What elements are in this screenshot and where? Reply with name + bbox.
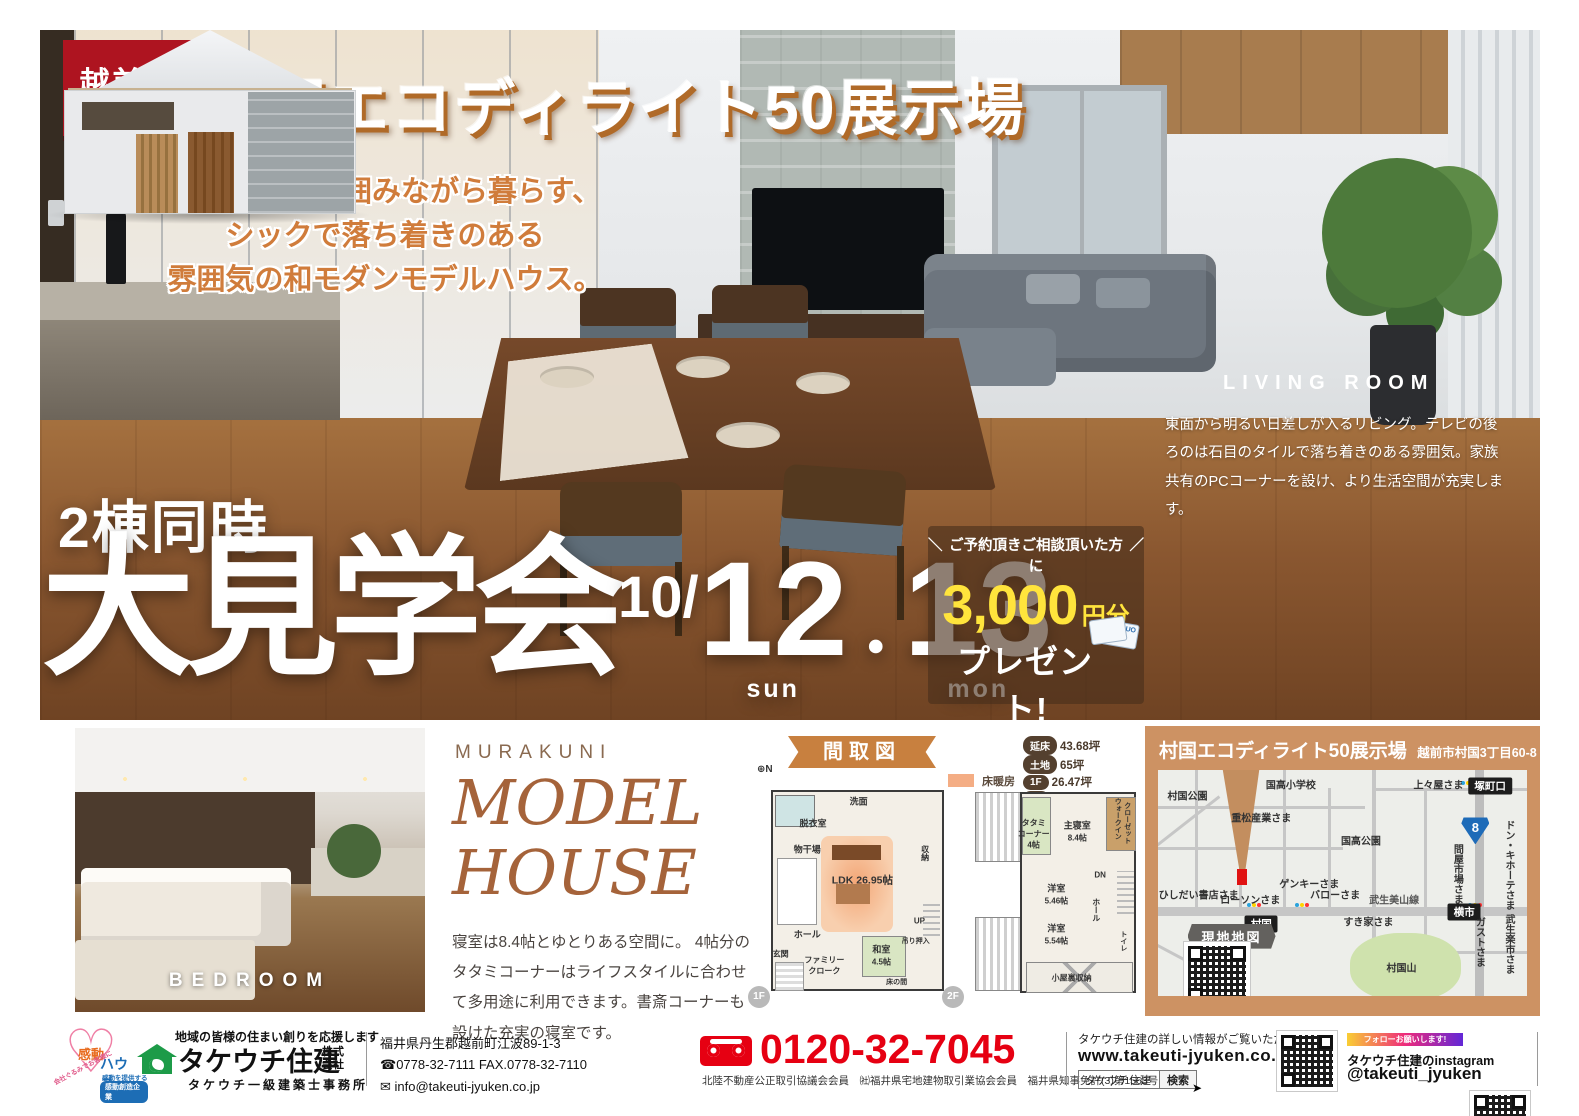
courtyard-area [777,858,817,925]
site-marker [1237,869,1247,885]
map-label: 武生楽市さま [1501,914,1516,974]
instagram-qr-code[interactable] [1470,1091,1530,1116]
event-month: 10/ [618,564,699,631]
map-canvas: 8 国高小学校村国公園上々屋さま塚町口重松産業さま国高公園ドン・キホーテさま問屋… [1158,770,1527,996]
map-label: 武生美山線 [1369,891,1419,906]
plan2-badge: 2F [942,986,964,1008]
stat-pill: 延床43.68坪 [1023,736,1104,755]
map-label: 国高公園 [1341,833,1381,848]
room-label: DN [1094,871,1106,880]
floor-plan-1f: 洗面脱衣室物干場LDK 26.95帖収納UPホール玄関ファミリークローク和室4.… [756,788,946,1006]
event-title: 大見学会 [42,530,618,690]
coupon-amount: 3,000 [942,573,1077,636]
room-label: 小屋裏収納 [1052,972,1092,983]
map-label: バローさま [1310,887,1360,902]
slash-right: ／ [1130,534,1145,576]
map-label: 国高小学校 [1266,776,1316,791]
stairs-1f [923,901,940,936]
entrance-tile [775,962,804,990]
search-box[interactable]: タケウチ住建 検索➤ [1078,1070,1197,1089]
event-day1: 12 [699,548,848,671]
footer-divider [1066,1032,1067,1086]
sofa-pillows [1026,274,1080,304]
instagram-handle[interactable]: @takeuti_jyuken [1347,1064,1482,1084]
coupon-condition: ご予約頂きご相談頂いた方に [949,534,1124,576]
room-label: クローク [808,966,840,977]
event-dow1: sun [746,675,799,704]
contact-block: 福井県丹生郡越前町江波89-1-3 ☎0778-32-7111 FAX.0778… [380,1033,587,1097]
balcony-bottom [975,917,1023,991]
flyer: 越前市 ECHIZEN 村国エコディライト50展示場 憧れの中庭を囲みながら暮ら… [0,0,1579,1116]
downlights [115,774,375,784]
room-label: 洗面 [850,795,868,808]
map-address: 越前市村国3丁目60-8 [1417,746,1536,760]
heating-swatch [948,774,974,787]
plate [540,366,594,388]
map-label: 村国公園 [1168,787,1208,802]
coupon-panel: ＼ ご予約頂きご相談頂いた方に ／ 3,000 円分 プレゼント! QUO ご予… [928,526,1144,704]
company-suffix: 株式 会社 [322,1046,344,1072]
compass-north: ⊕N [757,764,773,775]
room-label: 洋室 [1047,882,1065,895]
phone-number[interactable]: 0120-32-7045 [760,1026,1015,1073]
map-label: 村国山 [1387,959,1417,974]
room-label: 5.54帖 [1045,935,1069,946]
coupon-present: プレゼント! [936,635,1114,720]
quo-card [1088,616,1127,646]
footer-divider [366,1032,367,1086]
company-name: タケウチ住建 [178,1040,340,1079]
room-label: 洋室 [1047,921,1065,934]
map-label: 塚町口 [1468,777,1512,794]
plan1-badge: 1F [748,986,770,1008]
coupon-condition-row: ＼ ご予約頂きご相談頂いた方に ／ [928,534,1144,576]
balcony-top [975,792,1023,862]
plate [796,372,850,394]
access-map-panel: 村国エコディライト50展示場 越前市村国3丁目60-8 8 [1145,726,1540,1016]
room-label: 物干場 [794,843,821,856]
map-qr-code[interactable] [1184,942,1250,996]
house-wood-slats [136,134,178,213]
heating-label: 床暖房 [982,773,1015,789]
bedroom-photo: BEDROOM [75,728,425,1012]
room-label: UP [914,916,925,925]
route-8-shield: 8 [1461,817,1489,844]
plate [676,356,730,378]
room-label: ファミリー [804,955,844,966]
contact-email[interactable]: ✉ info@takeuti-jyuken.co.jp [380,1076,587,1097]
instagram-banner: フォローお願いします! [1347,1033,1463,1046]
bedroom-plant [327,824,381,878]
search-button[interactable]: 検索➤ [1159,1071,1196,1088]
room-label: ホール [794,928,821,941]
house-window-strip [82,102,174,130]
company-office: タケウチ一級建築士事務所 [188,1076,368,1093]
freedial-icon [700,1036,752,1066]
room-label: LDK 26.95帖 [832,872,893,887]
plate [716,422,780,448]
room-label: 主寝室 [1064,819,1091,832]
room-label: 8.4帖 [1068,833,1087,844]
bedroom-caption: BEDROOM [75,970,425,992]
room-label: 吊り押入 [902,936,930,946]
map-label: ローソンさま [1220,891,1280,906]
cursor-icon: ➤ [1192,1081,1202,1095]
room-label: ウォークイン [1112,798,1122,840]
plant-foliage [1322,158,1472,308]
map-label: 問屋市場さま [1449,844,1464,904]
room-label: 床の間 [886,977,907,987]
model-house-description: 寝室は8.4帖とゆとりある空間に。 4帖分のタタミコーナーはライフスタイルに合わ… [452,928,752,1049]
tagline-line3: 雰囲気の和モダンモデルハウス。 [115,258,655,302]
room-label: 4.5帖 [872,957,891,968]
dining-chair [712,285,808,341]
floor-plan-ribbon: 間取図 [788,736,936,768]
kitchen-counter-front [40,320,340,420]
living-room-heading: LIVING ROOM [1223,372,1505,395]
floor-plan-2f: タタミコーナー4帖主寝室8.4帖ウォークインクローゼットDN洋室5.46帖ホール… [950,788,1140,1006]
kando-house-logo: ♡ 感動 ハウス。 感動を提供する 感動創造企業 会社ぐるみでお客様に [56,1028,148,1094]
map-label: すき家さま [1343,914,1393,929]
room-label: 4帖 [1027,839,1039,850]
room-label: コーナー [1018,828,1050,839]
map-label: ドン・キホーテさま [1501,820,1516,910]
model-house-title-1: MODEL [452,772,702,834]
room-label: 収納 [920,845,931,861]
stat-pill: 土地65坪 [1023,755,1104,774]
contact-tel: ☎0778-32-7111 FAX.0778-32-7110 [380,1054,587,1075]
footer-divider [1537,1032,1538,1086]
room-label: タタミ [1022,817,1046,828]
map-label: 上々屋さま [1413,776,1463,791]
kitchen-island [832,845,881,860]
company-house-icon [140,1044,174,1074]
living-room-block: LIVING ROOM 東面から明るい日差しが入るリビング。テレビの後ろのは石目… [1165,372,1505,524]
website-url[interactable]: www.takeuti-jyuken.co.jp [1078,1046,1292,1066]
living-room-photo: 越前市 ECHIZEN 村国エコディライト50展示場 憧れの中庭を囲みながら暮ら… [40,30,1540,720]
room-label: 5.46帖 [1045,896,1069,907]
room-label: 脱衣室 [799,816,826,829]
map-label: ガストさま [1472,917,1487,967]
room-label: 玄関 [773,948,789,959]
room-label: クローゼット [1122,802,1132,844]
map-label: 重松産業さま [1231,810,1291,825]
search-input[interactable]: タケウチ住建 [1079,1071,1159,1088]
room-label: 和室 [872,943,890,956]
house-stone-wall [248,92,354,213]
model-house-brand: MURAKUNI [455,742,612,764]
map-title: 村国エコディライト50展示場 [1159,741,1407,762]
contact-address: 福井県丹生郡越前町江波89-1-3 [380,1033,587,1054]
model-house-title-2: HOUSE [452,842,697,904]
slash-left: ＼ [928,534,943,576]
event-date-dot: ・ [848,604,904,685]
website-qr-code[interactable] [1277,1031,1337,1091]
house-entrance-door [188,132,234,213]
room-label: ホール [1091,898,1102,922]
map-header: 村国エコディライト50展示場 越前市村国3丁目60-8 [1145,726,1540,763]
living-room-body: 東面から明るい日差しが入るリビング。テレビの後ろのは石目のタイルで落ち着きのある… [1165,411,1505,524]
stairs-2f [1117,871,1134,915]
kando-company-badge: 感動創造企業 [100,1081,148,1103]
bed [81,868,291,946]
room-label: トイレ [1118,930,1128,951]
